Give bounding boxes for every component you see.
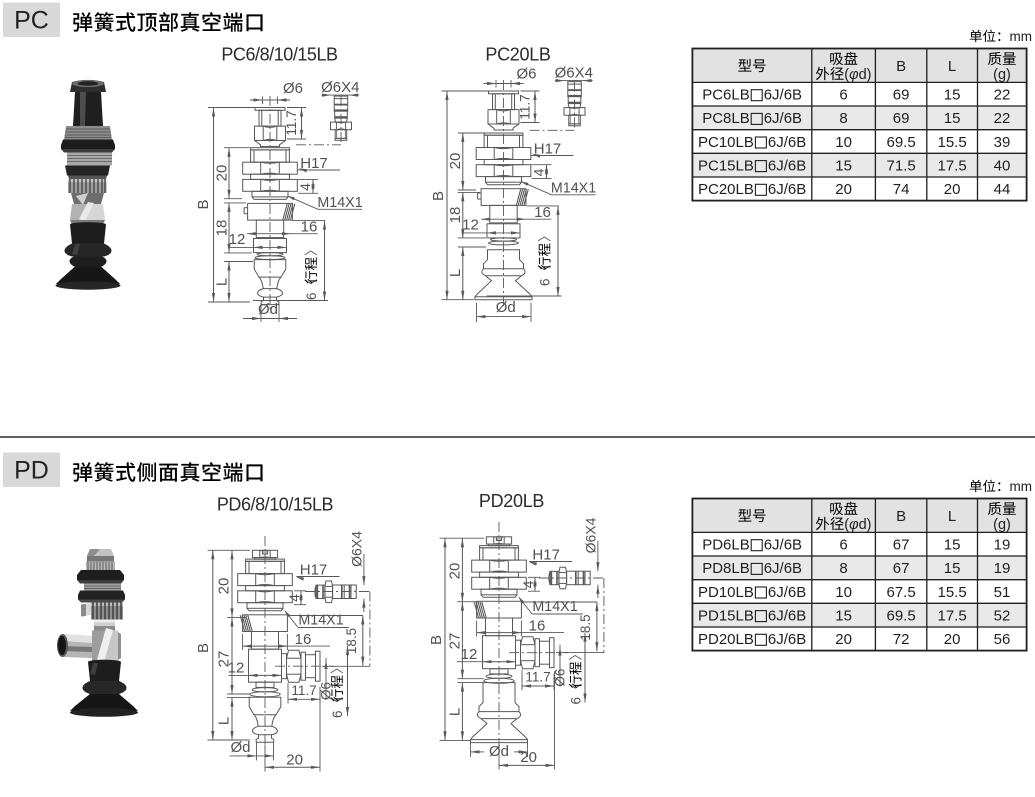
svg-text:12: 12 <box>228 660 245 677</box>
svg-text:PC6/8/10/15LB: PC6/8/10/15LB <box>221 45 338 65</box>
svg-text:19: 19 <box>994 560 1011 577</box>
svg-text:6J/6B: 6J/6B <box>768 584 806 601</box>
svg-text:67.5: 67.5 <box>886 584 915 601</box>
svg-text:6J/6B: 6J/6B <box>768 157 806 174</box>
svg-text:6J/6B: 6J/6B <box>764 537 802 554</box>
svg-text:PD15LB: PD15LB <box>698 607 754 624</box>
svg-text:71.5: 71.5 <box>886 157 915 174</box>
svg-text:Ø6X4: Ø6X4 <box>583 517 599 553</box>
svg-text:Ø6: Ø6 <box>283 80 303 97</box>
svg-text:12: 12 <box>462 217 479 234</box>
svg-text:L: L <box>948 508 956 525</box>
svg-text:PC: PC <box>14 7 49 35</box>
svg-text:16: 16 <box>295 631 312 648</box>
svg-text:67: 67 <box>893 537 910 554</box>
svg-text:H17: H17 <box>300 562 328 579</box>
svg-text:(g): (g) <box>993 517 1011 533</box>
svg-text:18.5: 18.5 <box>344 628 359 654</box>
svg-text:PD8LB: PD8LB <box>702 560 750 577</box>
svg-text:12: 12 <box>229 231 246 248</box>
svg-text:Ø6X4: Ø6X4 <box>349 531 365 567</box>
svg-text:6J/6B: 6J/6B <box>768 134 806 151</box>
svg-text:8: 8 <box>839 560 847 577</box>
svg-text:Ød: Ød <box>230 739 250 756</box>
svg-text:4: 4 <box>286 594 302 602</box>
svg-text:17.5: 17.5 <box>937 607 966 624</box>
svg-text:6J/6B: 6J/6B <box>768 181 806 198</box>
svg-text:20: 20 <box>216 578 233 595</box>
svg-text:16: 16 <box>301 219 318 236</box>
svg-text:〉: 〉 <box>538 229 553 243</box>
svg-text:15: 15 <box>835 157 852 174</box>
svg-text:B: B <box>195 643 212 653</box>
svg-text:Ød: Ød <box>496 299 516 316</box>
svg-text:17.5: 17.5 <box>937 157 966 174</box>
svg-text:〉: 〉 <box>330 661 345 675</box>
svg-text:15.5: 15.5 <box>937 584 966 601</box>
svg-text:L: L <box>948 58 956 75</box>
svg-text:10: 10 <box>835 134 852 151</box>
svg-text:6J/6B: 6J/6B <box>768 607 806 624</box>
svg-text:69.5: 69.5 <box>886 134 915 151</box>
svg-text:(φd): (φd) <box>844 517 871 533</box>
svg-text:20: 20 <box>944 631 961 648</box>
svg-text:PD6LB: PD6LB <box>702 537 750 554</box>
svg-text:15: 15 <box>944 560 961 577</box>
svg-text:11.7: 11.7 <box>525 670 550 685</box>
svg-text:8: 8 <box>839 110 847 127</box>
svg-text:20: 20 <box>286 752 303 769</box>
svg-text:PD10LB: PD10LB <box>698 584 754 601</box>
svg-text:L: L <box>447 269 464 277</box>
svg-text:20: 20 <box>835 181 852 198</box>
svg-text:PC8LB: PC8LB <box>702 110 750 127</box>
svg-text:B: B <box>195 199 212 209</box>
svg-text:PD6/8/10/15LB: PD6/8/10/15LB <box>217 495 334 515</box>
svg-text:67: 67 <box>893 560 910 577</box>
svg-text:11.7: 11.7 <box>518 94 533 119</box>
svg-text:6J/6B: 6J/6B <box>764 110 802 127</box>
svg-text:PC15LB: PC15LB <box>698 157 754 174</box>
svg-text:74: 74 <box>893 181 910 198</box>
svg-text:(g): (g) <box>993 67 1011 83</box>
svg-text:B: B <box>428 635 445 645</box>
svg-text:L: L <box>446 708 463 716</box>
svg-text:M14X1: M14X1 <box>317 195 362 211</box>
svg-text:6J/6B: 6J/6B <box>764 87 802 104</box>
svg-text:6: 6 <box>839 537 847 554</box>
svg-text:16: 16 <box>529 618 546 635</box>
svg-text:〉: 〉 <box>304 243 319 257</box>
svg-text:PD: PD <box>14 457 49 485</box>
svg-text:15: 15 <box>944 537 961 554</box>
svg-text:6: 6 <box>569 697 584 705</box>
svg-text:M14X1: M14X1 <box>551 181 596 197</box>
svg-text:69.5: 69.5 <box>886 607 915 624</box>
svg-text:72: 72 <box>893 631 910 648</box>
svg-text:6J/6B: 6J/6B <box>768 631 806 648</box>
svg-text:20: 20 <box>214 165 231 182</box>
svg-text:B: B <box>430 191 447 201</box>
svg-text:16: 16 <box>534 204 551 221</box>
svg-text:4: 4 <box>520 580 536 588</box>
svg-text:4: 4 <box>297 183 313 191</box>
svg-text:39: 39 <box>994 134 1011 151</box>
svg-text:56: 56 <box>994 631 1011 648</box>
svg-text:mm: mm <box>1010 479 1033 494</box>
svg-text:6: 6 <box>839 87 847 104</box>
svg-text:51: 51 <box>994 584 1011 601</box>
svg-text:15: 15 <box>835 607 852 624</box>
svg-text:15: 15 <box>944 110 961 127</box>
svg-text:10: 10 <box>835 584 852 601</box>
svg-text:44: 44 <box>994 181 1011 198</box>
svg-text:PD20LB: PD20LB <box>698 631 754 648</box>
svg-text:PC20LB: PC20LB <box>485 45 551 65</box>
svg-text:H17: H17 <box>532 547 560 564</box>
svg-text:〉: 〉 <box>569 647 584 661</box>
svg-text:69: 69 <box>893 87 910 104</box>
svg-text:Ø6: Ø6 <box>516 66 536 83</box>
svg-text:mm: mm <box>1010 29 1033 44</box>
svg-text:Ø6X4: Ø6X4 <box>321 79 359 96</box>
svg-text:11.7: 11.7 <box>291 683 316 698</box>
svg-text:11.7: 11.7 <box>284 110 299 135</box>
svg-text:6J/6B: 6J/6B <box>764 560 802 577</box>
svg-text:12: 12 <box>461 646 478 663</box>
svg-text:M14X1: M14X1 <box>532 599 577 615</box>
svg-text:PC20LB: PC20LB <box>698 181 754 198</box>
svg-text:B: B <box>896 58 906 75</box>
svg-text:15: 15 <box>944 87 961 104</box>
svg-text:22: 22 <box>994 87 1011 104</box>
svg-text:6: 6 <box>538 278 553 286</box>
svg-text:L: L <box>216 717 233 725</box>
svg-text:PC6LB: PC6LB <box>702 87 750 104</box>
svg-text:20: 20 <box>446 563 463 580</box>
svg-text:20: 20 <box>447 153 464 170</box>
svg-text:15.5: 15.5 <box>937 134 966 151</box>
svg-text:40: 40 <box>994 157 1011 174</box>
svg-text:6: 6 <box>330 710 345 718</box>
svg-text:Ø6X4: Ø6X4 <box>555 65 593 82</box>
svg-text:M14X1: M14X1 <box>298 613 343 629</box>
svg-text:B: B <box>896 508 906 525</box>
svg-text:PC10LB: PC10LB <box>698 134 754 151</box>
svg-text:19: 19 <box>994 537 1011 554</box>
svg-text:6: 6 <box>304 292 319 300</box>
svg-text:52: 52 <box>994 607 1011 624</box>
svg-text:20: 20 <box>520 749 537 766</box>
svg-text:PD20LB: PD20LB <box>479 491 545 511</box>
svg-text:22: 22 <box>994 110 1011 127</box>
svg-text:(φd): (φd) <box>844 67 871 83</box>
svg-text:L: L <box>214 278 231 286</box>
svg-text:4: 4 <box>531 168 547 176</box>
svg-text:20: 20 <box>835 631 852 648</box>
svg-text:69: 69 <box>893 110 910 127</box>
svg-text:20: 20 <box>944 181 961 198</box>
